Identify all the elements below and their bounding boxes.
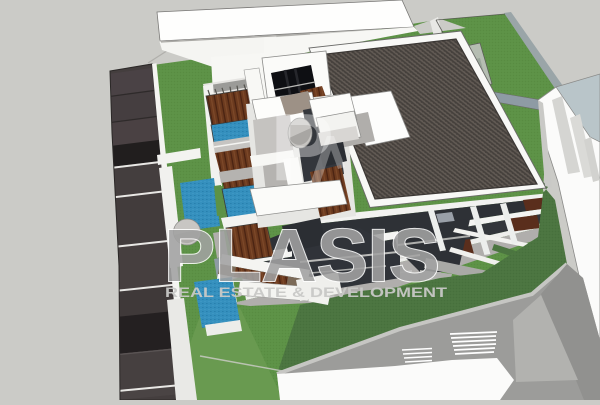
svg-text:REAL ESTATE & DEVELOPMENT: REAL ESTATE & DEVELOPMENT [165, 285, 448, 300]
